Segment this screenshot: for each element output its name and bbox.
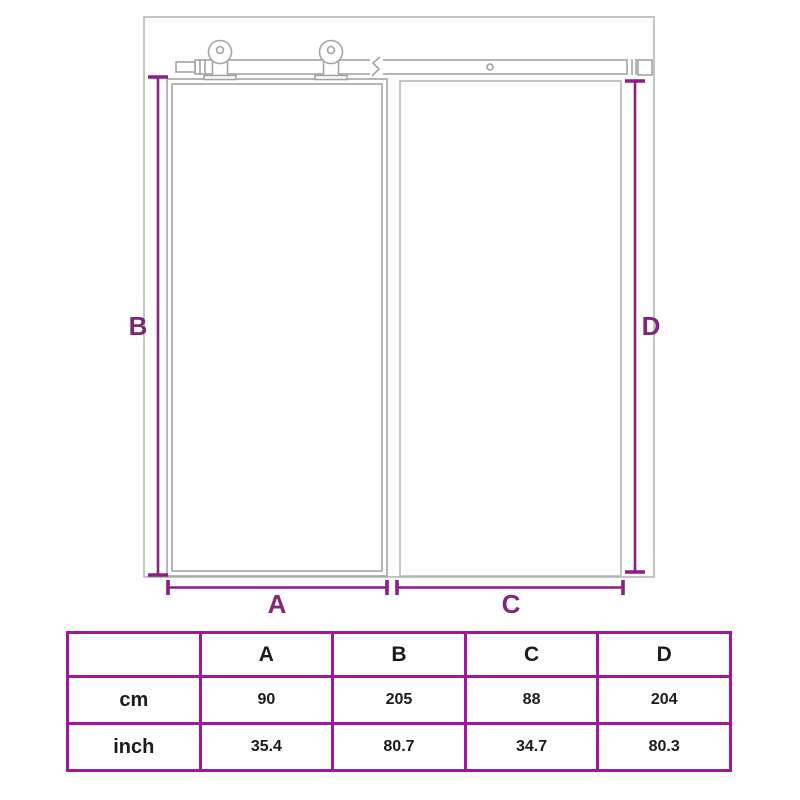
cell-inch-a: 35.4: [200, 724, 333, 771]
product-dimension-sheet: B D A C A B C D: [0, 0, 800, 800]
table-row-inch: inch 35.4 80.7 34.7 80.3: [68, 724, 731, 771]
dimension-label-d: D: [642, 311, 661, 341]
table-row-cm: cm 90 205 88 204: [68, 677, 731, 724]
row-label-cm: cm: [68, 677, 201, 724]
table-header-b: B: [333, 633, 466, 677]
hanger-mount-plate: [315, 76, 347, 80]
cell-cm-a: 90: [200, 677, 333, 724]
table-header-d: D: [598, 633, 731, 677]
cell-cm-b: 205: [333, 677, 466, 724]
dimension-c: C: [397, 580, 623, 619]
doorway-opening: [400, 81, 621, 576]
row-label-inch: inch: [68, 724, 201, 771]
dimension-label-b: B: [129, 311, 148, 341]
dimension-label-c: C: [502, 589, 521, 619]
sliding-door-dimension-diagram: B D A C: [0, 0, 800, 625]
dimension-d: D: [625, 81, 660, 572]
cell-inch-b: 80.7: [333, 724, 466, 771]
cell-inch-d: 80.3: [598, 724, 731, 771]
rail-break-symbol: [370, 57, 383, 77]
cell-cm-c: 88: [465, 677, 598, 724]
rail-tube: [195, 60, 627, 74]
dimension-label-a: A: [268, 589, 287, 619]
door-inner-edge: [172, 84, 382, 571]
table-header-c: C: [465, 633, 598, 677]
roller-hub: [217, 47, 224, 54]
dimensions-table: A B C D cm 90 205 88 204 inch 35.4 80.7 …: [66, 631, 732, 772]
table-corner-cell: [68, 633, 201, 677]
dimension-a: A: [168, 580, 387, 619]
table-header-row: A B C D: [68, 633, 731, 677]
rail-end-cap-left: [176, 62, 195, 72]
sliding-rail: [176, 57, 652, 77]
roller-hub: [328, 47, 335, 54]
cell-cm-d: 204: [598, 677, 731, 724]
rail-end-cap-right: [638, 60, 652, 75]
dimension-b: B: [129, 77, 168, 575]
door-outer-edge: [167, 79, 387, 576]
hanger-mount-plate: [204, 76, 236, 80]
sliding-door-panel: [167, 79, 387, 576]
table-header-a: A: [200, 633, 333, 677]
wall-outline: [144, 17, 654, 577]
cell-inch-c: 34.7: [465, 724, 598, 771]
